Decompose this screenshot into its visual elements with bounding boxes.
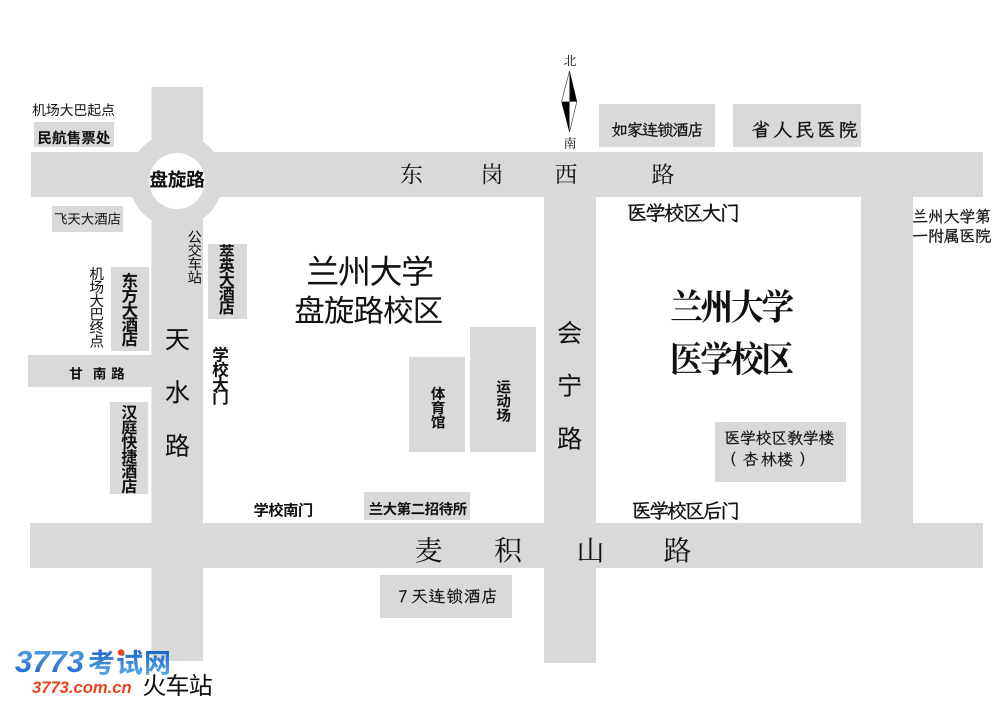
svg-text:3773: 3773 — [15, 644, 84, 679]
svg-text:3773.com.cn: 3773.com.cn — [32, 678, 132, 697]
